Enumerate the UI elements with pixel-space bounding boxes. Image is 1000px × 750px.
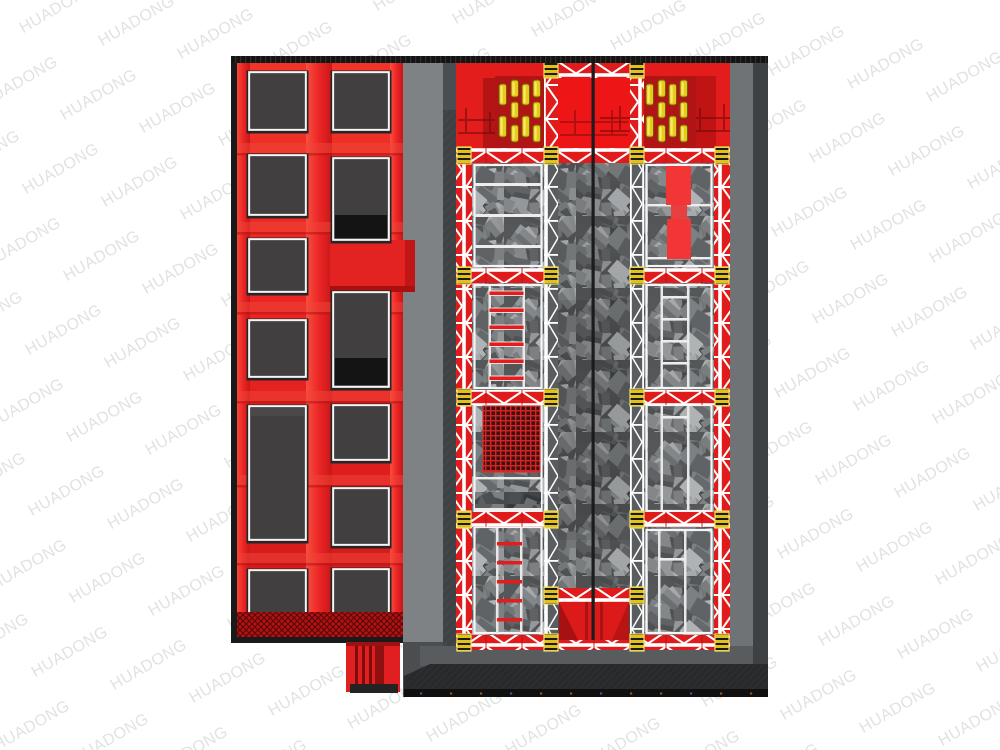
svg-text:HUADONG: HUADONG <box>974 618 1000 675</box>
svg-text:HUADONG: HUADONG <box>64 388 146 445</box>
svg-text:HUADONG: HUADONG <box>187 649 269 706</box>
svg-text:HUADONG: HUADONG <box>775 505 857 562</box>
svg-text:HUADONG: HUADONG <box>503 701 585 750</box>
svg-text:HUADONG: HUADONG <box>149 723 231 750</box>
svg-text:HUADONG: HUADONG <box>965 135 1000 192</box>
svg-text:HUADONG: HUADONG <box>608 0 690 54</box>
svg-text:HUADONG: HUADONG <box>266 662 348 719</box>
svg-text:HUADONG: HUADONG <box>96 0 178 50</box>
svg-text:HUADONG: HUADONG <box>930 370 1000 427</box>
svg-text:HUADONG: HUADONG <box>20 140 102 197</box>
svg-text:HUADONG: HUADONG <box>895 605 977 662</box>
svg-text:HUADONG: HUADONG <box>813 431 895 488</box>
svg-text:HUADONG: HUADONG <box>58 66 140 123</box>
svg-text:HUADONG: HUADONG <box>105 475 187 532</box>
svg-text:HUADONG: HUADONG <box>99 153 181 210</box>
svg-text:HUADONG: HUADONG <box>924 48 1000 105</box>
svg-text:HUADONG: HUADONG <box>0 0 20 24</box>
svg-text:HUADONG: HUADONG <box>810 270 892 327</box>
svg-text:HUADONG: HUADONG <box>29 623 111 680</box>
svg-text:HUADONG: HUADONG <box>0 697 73 750</box>
svg-text:HUADONG: HUADONG <box>26 462 108 519</box>
svg-text:HUADONG: HUADONG <box>0 375 67 432</box>
svg-text:HUADONG: HUADONG <box>740 740 822 750</box>
svg-text:HUADONG: HUADONG <box>143 401 225 458</box>
svg-text:HUADONG: HUADONG <box>892 444 974 501</box>
svg-text:HUADONG: HUADONG <box>661 727 743 750</box>
svg-text:HUADONG: HUADONG <box>102 314 184 371</box>
svg-text:HUADONG: HUADONG <box>424 688 506 745</box>
svg-text:HUADONG: HUADONG <box>845 35 927 92</box>
svg-text:HUADONG: HUADONG <box>67 549 149 606</box>
svg-text:HUADONG: HUADONG <box>23 301 105 358</box>
svg-text:HUADONG: HUADONG <box>971 457 1000 514</box>
svg-text:HUADONG: HUADONG <box>0 214 64 271</box>
svg-text:HUADONG: HUADONG <box>772 344 854 401</box>
svg-text:HUADONG: HUADONG <box>0 288 26 345</box>
svg-text:HUADONG: HUADONG <box>582 714 664 750</box>
svg-text:HUADONG: HUADONG <box>933 531 1000 588</box>
svg-text:HUADONG: HUADONG <box>108 636 190 693</box>
svg-text:HUADONG: HUADONG <box>886 122 968 179</box>
svg-text:HUADONG: HUADONG <box>137 79 219 136</box>
svg-text:HUADONG: HUADONG <box>889 283 971 340</box>
svg-text:HUADONG: HUADONG <box>807 109 889 166</box>
svg-text:HUADONG: HUADONG <box>450 0 532 28</box>
svg-text:HUADONG: HUADONG <box>228 736 310 750</box>
svg-text:HUADONG: HUADONG <box>146 562 228 619</box>
svg-text:HUADONG: HUADONG <box>0 449 29 506</box>
svg-text:HUADONG: HUADONG <box>936 692 1000 749</box>
svg-text:HUADONG: HUADONG <box>816 592 898 649</box>
svg-text:HUADONG: HUADONG <box>848 196 930 253</box>
svg-text:HUADONG: HUADONG <box>857 679 939 736</box>
svg-text:HUADONG: HUADONG <box>70 710 152 750</box>
svg-text:HUADONG: HUADONG <box>778 666 860 723</box>
svg-text:HUADONG: HUADONG <box>854 518 936 575</box>
svg-text:HUADONG: HUADONG <box>17 0 99 37</box>
svg-text:HUADONG: HUADONG <box>529 0 611 41</box>
svg-text:HUADONG: HUADONG <box>968 296 1000 353</box>
svg-text:HUADONG: HUADONG <box>769 183 851 240</box>
svg-text:HUADONG: HUADONG <box>0 53 61 110</box>
svg-text:HUADONG: HUADONG <box>140 240 222 297</box>
svg-text:HUADONG: HUADONG <box>0 536 70 593</box>
svg-text:HUADONG: HUADONG <box>0 127 23 184</box>
svg-text:HUADONG: HUADONG <box>927 209 1000 266</box>
svg-text:HUADONG: HUADONG <box>175 5 257 62</box>
svg-text:HUADONG: HUADONG <box>371 0 453 15</box>
svg-text:HUADONG: HUADONG <box>61 227 143 284</box>
svg-text:HUADONG: HUADONG <box>0 610 32 667</box>
svg-text:HUADONG: HUADONG <box>851 357 933 414</box>
svg-text:HUADONG: HUADONG <box>766 22 848 79</box>
